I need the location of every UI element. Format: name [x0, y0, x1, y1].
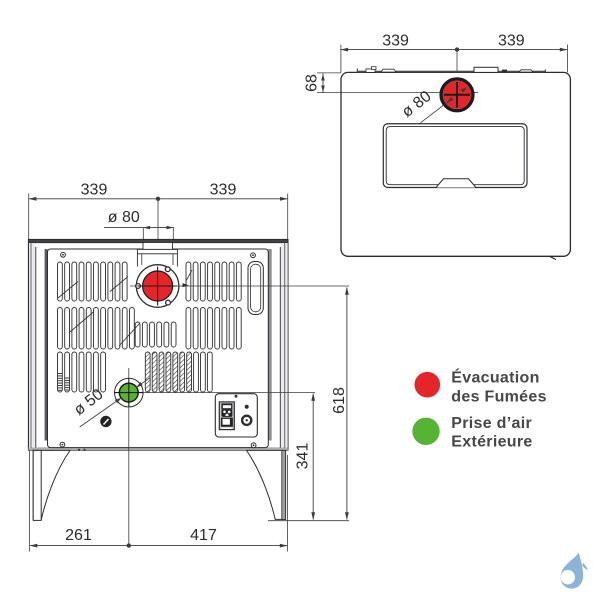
svg-text:417: 417 — [190, 527, 217, 544]
svg-text:339: 339 — [210, 182, 237, 199]
svg-text:261: 261 — [65, 527, 92, 544]
svg-text:339: 339 — [81, 182, 108, 199]
svg-text:Extérieure: Extérieure — [451, 434, 532, 451]
svg-text:Prise d’air: Prise d’air — [451, 415, 532, 432]
svg-text:des Fumées: des Fumées — [451, 388, 546, 405]
svg-text:ø 80: ø 80 — [108, 209, 140, 226]
svg-text:Évacuation: Évacuation — [451, 368, 539, 387]
svg-text:341: 341 — [295, 443, 312, 470]
svg-text:339: 339 — [382, 33, 409, 50]
svg-text:618: 618 — [331, 387, 348, 414]
svg-text:68: 68 — [303, 74, 320, 92]
svg-text:339: 339 — [498, 33, 525, 50]
